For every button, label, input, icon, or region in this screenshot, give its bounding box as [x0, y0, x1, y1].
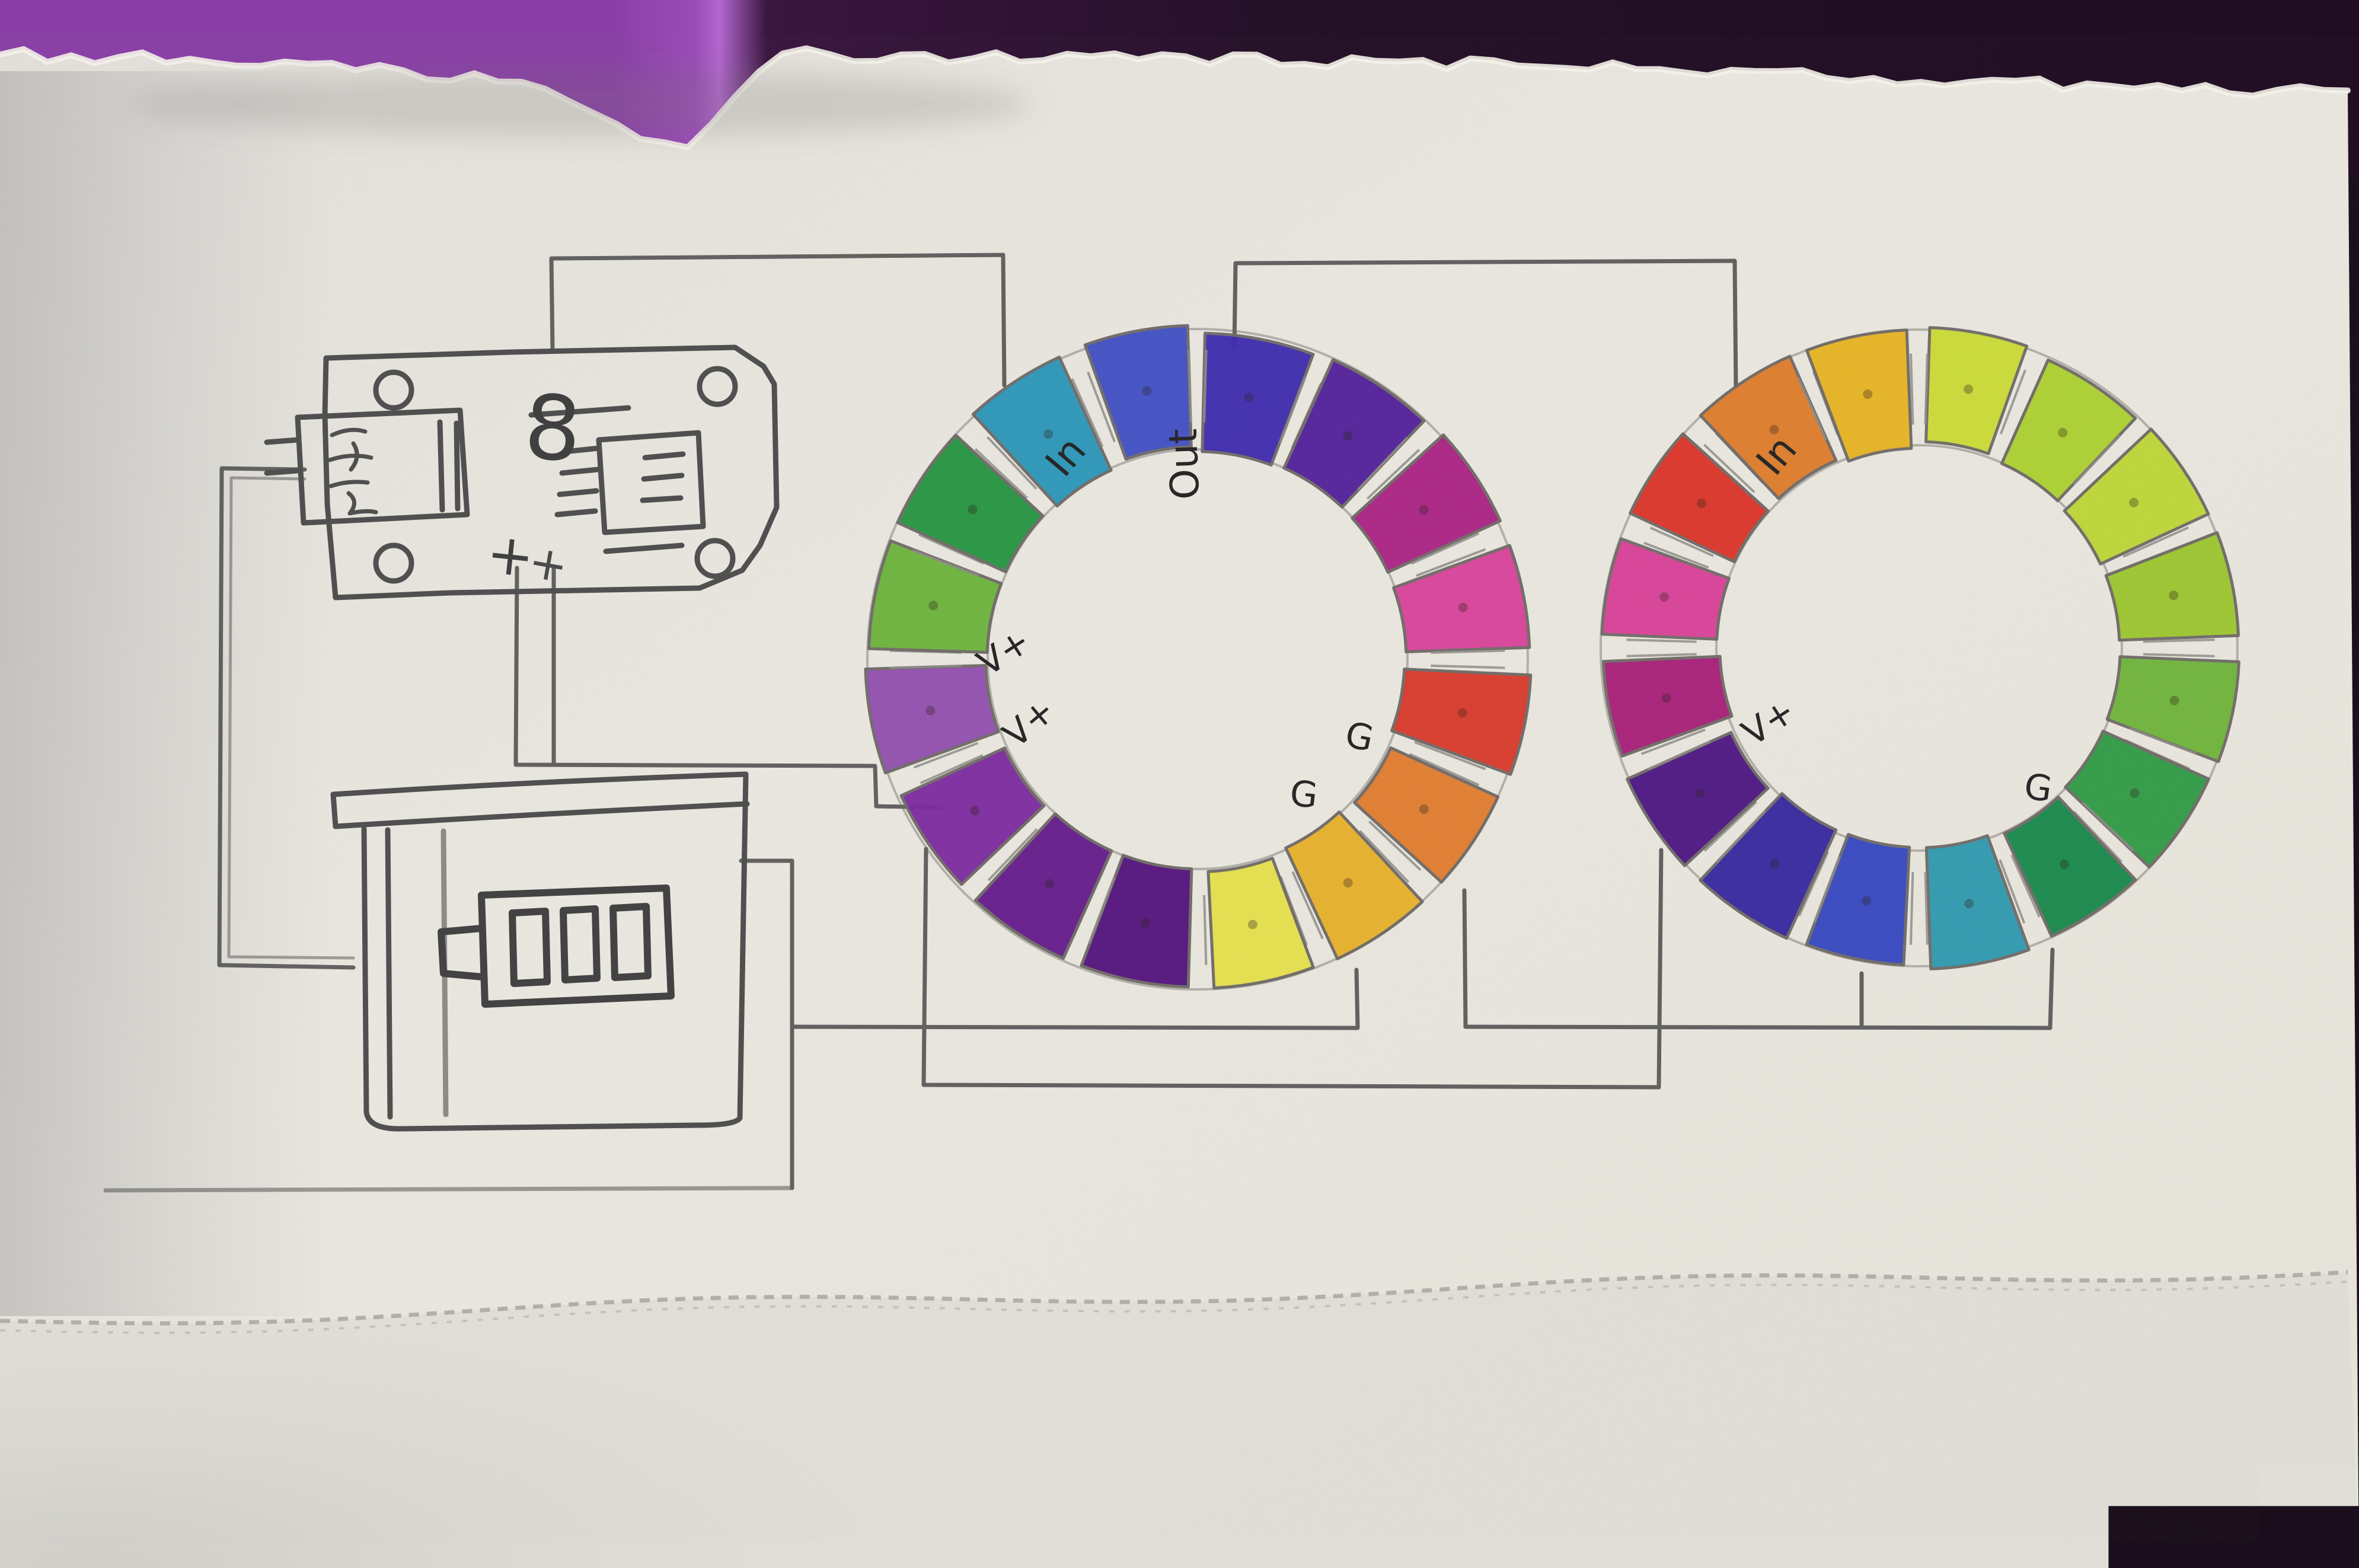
- drawing-canvas: 8 + + InOutV+V+GGInV+G: [0, 0, 2359, 1568]
- photo-of-hand-drawn-circuit-diagram: 8 + + InOutV+V+GGInV+G: [0, 0, 2359, 1568]
- paper-grain: [0, 36, 2359, 1568]
